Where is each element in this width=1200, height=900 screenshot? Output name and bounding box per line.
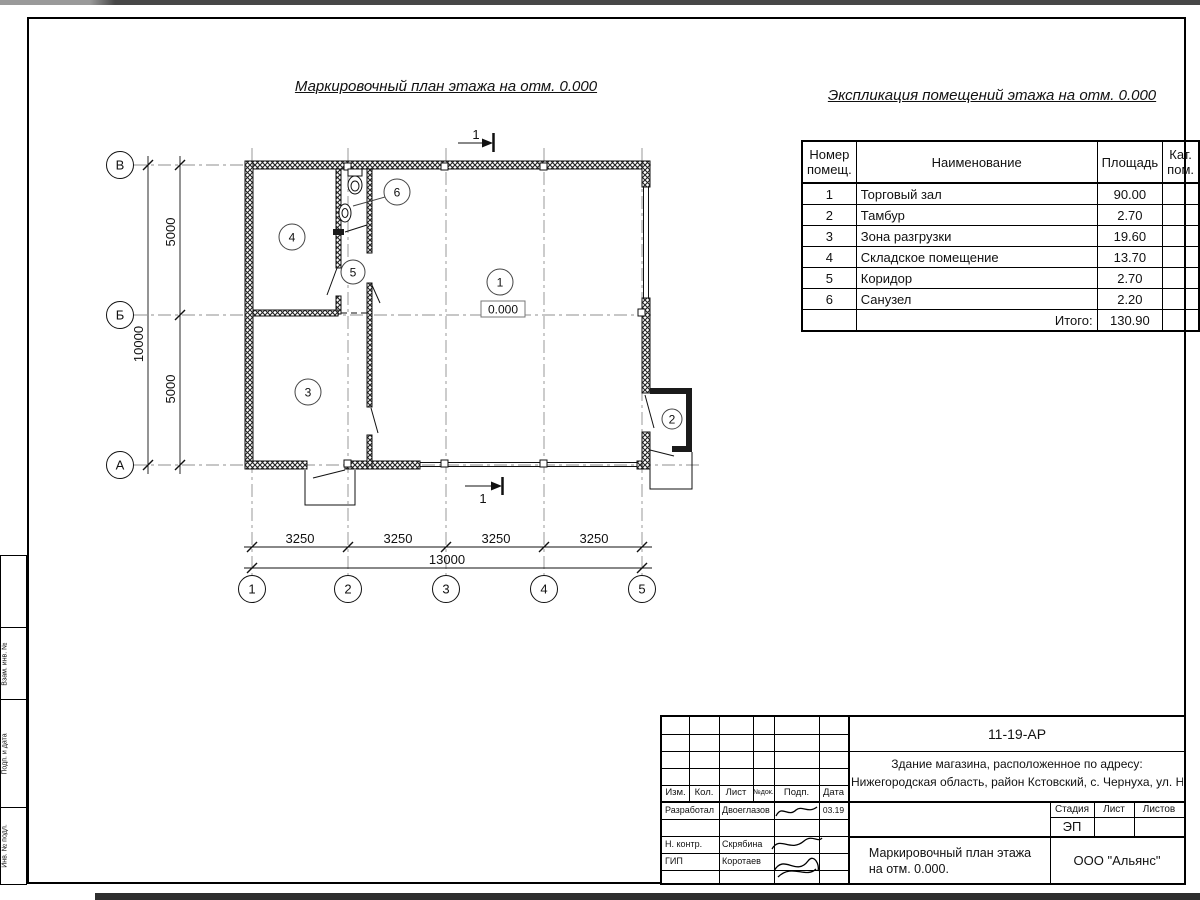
- tb-stage-header: Стадия: [1050, 802, 1094, 817]
- tb-col-ndok: №док.: [753, 785, 774, 802]
- axis-grid-lines: [134, 148, 700, 576]
- total-value: 130.90: [1097, 310, 1163, 332]
- tb-sheet-title-line1: Маркировочный план этажа: [869, 845, 1031, 861]
- signature-developer: [772, 801, 820, 821]
- window-lines: [420, 187, 649, 467]
- svg-text:А: А: [116, 458, 125, 473]
- dim-3250-4: 3250: [580, 531, 609, 546]
- table-row: 5Коридор2.70: [802, 268, 1199, 289]
- dim-3250-1: 3250: [286, 531, 315, 546]
- table-total-row: Итого:130.90: [802, 310, 1199, 332]
- col-category: Кат.пом.: [1163, 141, 1199, 183]
- porches: [305, 452, 692, 505]
- tb-role-gip: ГИП: [665, 853, 718, 870]
- tb-sheet-title-line2: на отм. 0.000.: [869, 861, 1031, 877]
- svg-text:4: 4: [540, 582, 547, 597]
- svg-text:3: 3: [305, 386, 312, 400]
- table-row: 2Тамбур2.70: [802, 205, 1199, 226]
- tb-col-izm: Изм.: [662, 785, 689, 802]
- svg-text:В: В: [116, 158, 125, 173]
- svg-text:1: 1: [472, 127, 479, 142]
- level-mark: 0.000: [481, 301, 525, 317]
- svg-text:1: 1: [497, 276, 504, 290]
- svg-text:2: 2: [669, 413, 676, 427]
- tb-line: [662, 768, 849, 769]
- drawing-sheet: Взам. инв. № Подп. и дата Инв. № подл. М…: [0, 0, 1200, 900]
- interior-walls: [253, 169, 372, 469]
- room-schedule-table: Номерпомещ. Наименование Площадь Кат.пом…: [801, 140, 1200, 332]
- svg-text:3: 3: [442, 582, 449, 597]
- svg-text:4: 4: [289, 231, 296, 245]
- section-mark-top: 1: [458, 127, 494, 152]
- dimension-ticks: [143, 160, 647, 573]
- tb-col-podp: Подп.: [774, 785, 819, 802]
- tb-col-list: Лист: [719, 785, 753, 802]
- tb-sheet-title: Маркировочный план этажа на отм. 0.000.: [850, 838, 1050, 883]
- total-label: Итого:: [856, 310, 1097, 332]
- tb-stage-value: ЭП: [1050, 817, 1094, 836]
- tb-object-line2: Нижегородская область, район Кстовский, …: [851, 775, 1183, 789]
- col-number: Номерпомещ.: [802, 141, 856, 183]
- svg-text:1: 1: [248, 582, 255, 597]
- table-row: 1Торговый зал90.00: [802, 183, 1199, 205]
- title-block: Изм. Кол. Лист №док. Подп. Дата Разработ…: [660, 715, 1186, 885]
- tb-role-developer: Разработал: [665, 802, 718, 819]
- tb-doc-number: 11-19-АР: [850, 717, 1184, 751]
- axis-bubbles-left: В Б А: [107, 152, 134, 479]
- schedule-header-row: Номерпомещ. Наименование Площадь Кат.пом…: [802, 141, 1199, 183]
- dim-5000-top: 5000: [163, 218, 178, 247]
- tb-line: [662, 819, 849, 820]
- tb-col-kol: Кол.: [689, 785, 719, 802]
- tb-date-developer: 03.19: [819, 802, 848, 819]
- table-row: 6Санузел2.20: [802, 289, 1199, 310]
- col-name: Наименование: [856, 141, 1097, 183]
- signature-ncontr-gip: [766, 833, 826, 883]
- tb-line: [850, 751, 1184, 752]
- svg-text:1: 1: [479, 491, 486, 506]
- door-stop-mark: [333, 229, 344, 235]
- svg-text:0.000: 0.000: [488, 303, 518, 317]
- svg-text:5: 5: [350, 266, 357, 280]
- svg-text:5: 5: [638, 582, 645, 597]
- dim-3250-3: 3250: [482, 531, 511, 546]
- sink-fixture: [339, 204, 351, 222]
- toilet-fixture: [348, 169, 362, 194]
- table-row: 4Складское помещение13.70: [802, 247, 1199, 268]
- tb-sheet-header: Лист: [1094, 802, 1134, 817]
- tb-line: [662, 734, 849, 735]
- tb-object-line1: Здание магазина, расположенное по адресу…: [851, 757, 1183, 771]
- tb-col-data: Дата: [819, 785, 848, 802]
- tb-sheets-header: Листов: [1134, 802, 1184, 817]
- svg-text:6: 6: [394, 186, 401, 200]
- dim-5000-bottom: 5000: [163, 375, 178, 404]
- table-row: 3Зона разгрузки19.60: [802, 226, 1199, 247]
- tb-role-ncontr: Н. контр.: [665, 836, 718, 853]
- tb-line: [662, 751, 849, 752]
- svg-text:2: 2: [344, 582, 351, 597]
- svg-text:Б: Б: [116, 308, 125, 323]
- dimension-lines: [148, 156, 652, 568]
- section-mark-bottom: 1: [465, 477, 503, 506]
- dim-3250-2: 3250: [384, 531, 413, 546]
- axis-bubbles-bottom: 1 2 3 4 5: [239, 576, 656, 603]
- dim-10000: 10000: [131, 326, 146, 362]
- tb-company: ООО "Альянс": [1050, 838, 1184, 883]
- col-area: Площадь: [1097, 141, 1163, 183]
- tb-name-developer: Двоеглазов: [722, 802, 773, 819]
- dim-13000: 13000: [429, 552, 465, 567]
